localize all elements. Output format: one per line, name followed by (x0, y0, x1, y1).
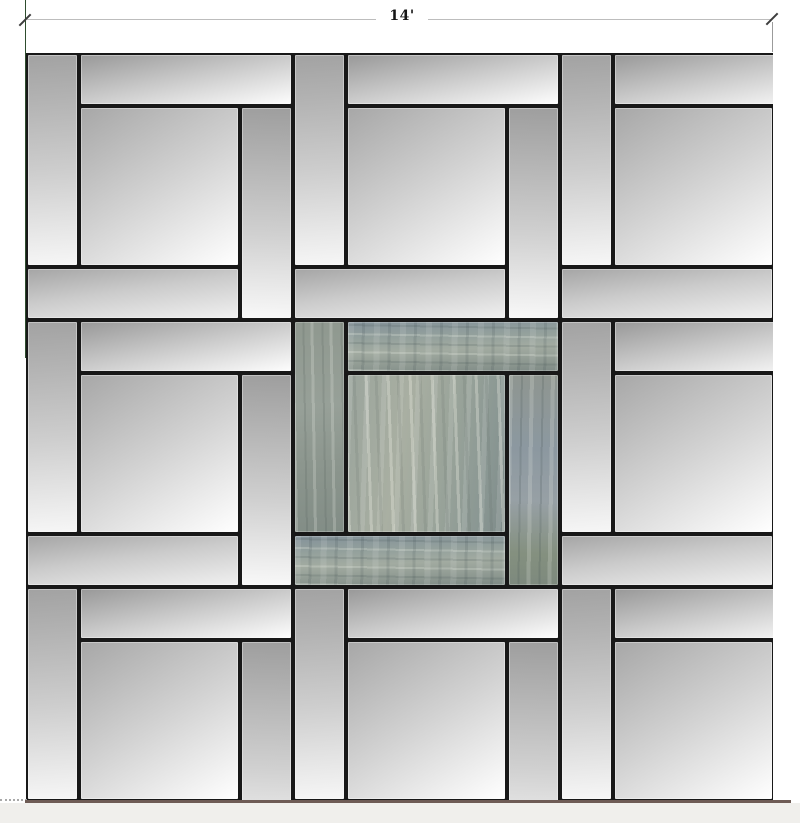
paver-module-r0c2 (560, 53, 773, 320)
paver-tile-bottom (295, 536, 505, 585)
foreground-strip (0, 803, 800, 823)
paver-module-r1c1 (293, 320, 560, 587)
paver-tile-right (242, 108, 291, 318)
paver-tile-square (348, 375, 505, 532)
paver-tile-left (562, 322, 611, 532)
paver-tile-square (615, 375, 772, 532)
paver-module-r2c0 (26, 587, 293, 802)
paver-tile-square (615, 108, 772, 265)
paver-tile-right (509, 375, 558, 585)
dimension-extension-line-right (772, 22, 773, 52)
paver-tile-bottom (562, 536, 772, 585)
paver-module-r2c2 (560, 587, 773, 802)
paver-tile-top (81, 55, 291, 104)
paver-tile-left (562, 55, 611, 265)
paver-tile-left (28, 322, 77, 532)
paver-tile-square (81, 375, 238, 532)
paver-tile-top (615, 55, 773, 104)
paver-tile-bottom (562, 269, 772, 318)
paver-tile-top (348, 55, 558, 104)
paver-tile-right (242, 375, 291, 585)
paver-tile-square (348, 108, 505, 265)
paver-tile-top (81, 589, 291, 638)
paver-tile-top (615, 589, 773, 638)
ground-edge-dots (0, 799, 27, 801)
paver-tile-left (28, 55, 77, 265)
paver-tile-left (295, 322, 344, 532)
paver-tile-square (615, 642, 772, 799)
paver-tile-square (81, 108, 238, 265)
paver-tile-top (615, 322, 773, 371)
dimension-label: 14' (376, 8, 428, 24)
paver-tile-bottom (295, 269, 505, 318)
paver-tile-square (348, 642, 505, 799)
paver-module-r2c1 (293, 587, 560, 802)
paver-tile-top (348, 589, 558, 638)
paver-module-r0c0 (26, 53, 293, 320)
paver-tile-left (295, 589, 344, 799)
paver-tile-top (348, 322, 558, 371)
paver-tile-right (242, 642, 291, 802)
paver-tile-left (28, 589, 77, 799)
patio-plan-drawing: 14' (0, 0, 800, 823)
paver-tile-bottom (28, 536, 238, 585)
paver-field (26, 53, 773, 802)
paver-tile-left (562, 589, 611, 799)
paver-module-r1c2 (560, 320, 773, 587)
paver-module-r1c0 (26, 320, 293, 587)
paver-tile-top (81, 322, 291, 371)
paver-tile-right (509, 642, 558, 802)
paver-tile-bottom (28, 269, 238, 318)
paver-module-r0c1 (293, 53, 560, 320)
paver-tile-left (295, 55, 344, 265)
paver-tile-square (81, 642, 238, 799)
paver-tile-right (509, 108, 558, 318)
